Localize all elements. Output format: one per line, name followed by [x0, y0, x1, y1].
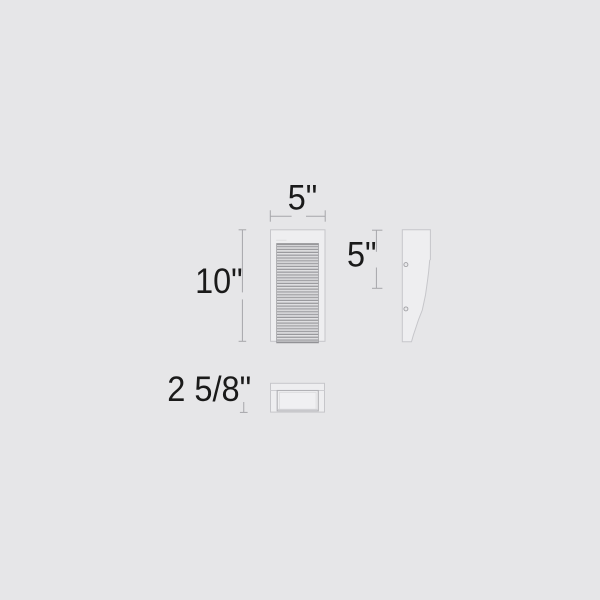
svg-text:2 5/8": 2 5/8" — [167, 370, 251, 409]
svg-text:5": 5" — [288, 179, 318, 218]
svg-text:10": 10" — [195, 262, 243, 301]
svg-text:5": 5" — [347, 236, 377, 275]
